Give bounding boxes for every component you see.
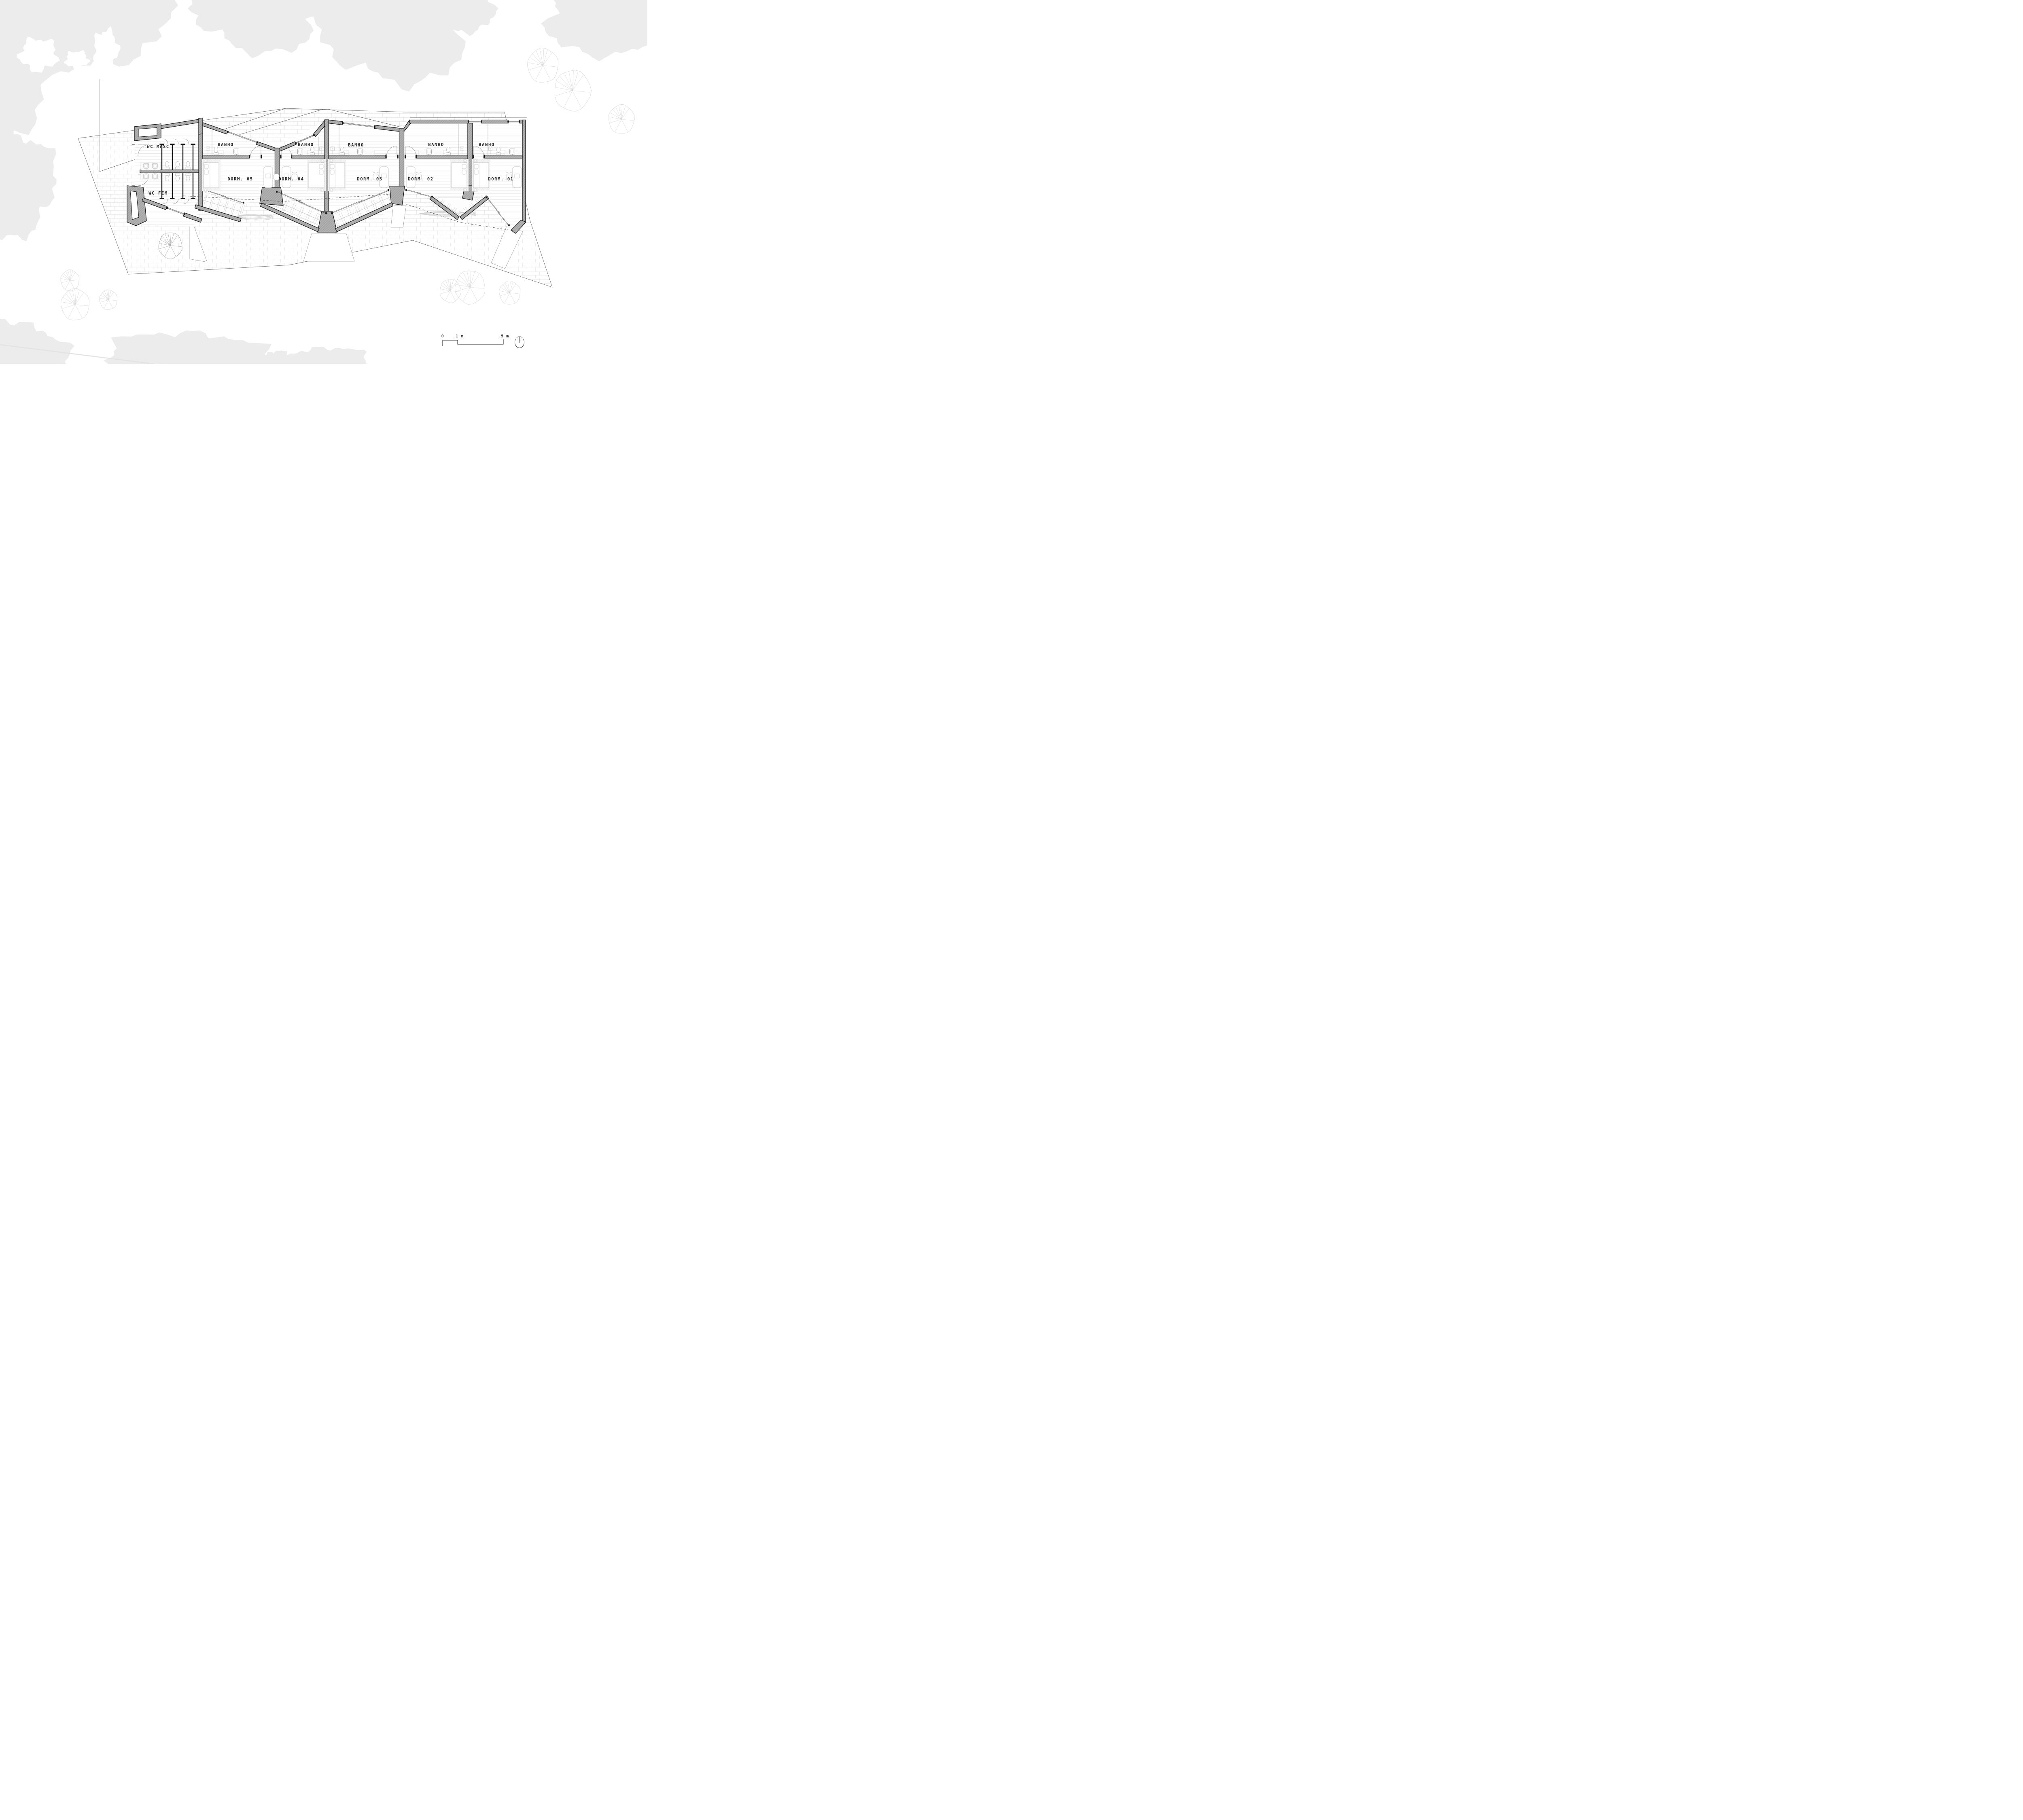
pillow bbox=[462, 164, 466, 169]
pillow bbox=[330, 170, 334, 174]
wall-divider-3-2 bbox=[399, 128, 404, 186]
toilet bbox=[214, 147, 218, 152]
tree-symbol bbox=[555, 70, 592, 111]
compass-needle-icon bbox=[520, 337, 520, 343]
label-dorm-02: DORM. 02 bbox=[408, 177, 433, 182]
bed bbox=[202, 159, 221, 191]
tree-symbol bbox=[609, 104, 634, 133]
north-indicator bbox=[515, 337, 524, 348]
label-dorm-05: DORM. 05 bbox=[227, 177, 253, 182]
tree-symbol bbox=[61, 270, 79, 290]
toilet bbox=[176, 176, 179, 181]
toilet bbox=[310, 147, 314, 152]
bed bbox=[307, 159, 326, 191]
wall-bath-u5 bbox=[203, 155, 250, 159]
label-banho-u3: BANHO bbox=[348, 143, 364, 148]
label-dorm-01: DORM. 01 bbox=[488, 177, 513, 182]
window-corner-nw bbox=[138, 128, 157, 137]
canopy-blob-bottom-left bbox=[0, 318, 74, 364]
tree-symbol bbox=[99, 290, 117, 310]
label-wc-masc: WC MASC bbox=[147, 144, 169, 149]
canopy-blob-top-center bbox=[184, 0, 327, 58]
toilet bbox=[165, 176, 169, 181]
tree-symbol bbox=[61, 288, 89, 320]
floor-plan-canvas: WC MASC WC FEM BANHO BANHO BANHO BANHO B… bbox=[0, 0, 647, 364]
sink bbox=[298, 149, 303, 154]
tree-symbol bbox=[527, 48, 558, 82]
pillow bbox=[319, 170, 323, 174]
tree-symbol bbox=[440, 279, 461, 303]
wall-bath-u3 bbox=[329, 155, 386, 159]
pillow bbox=[474, 170, 478, 174]
scale-five-meter: 5 m bbox=[501, 334, 509, 339]
sink bbox=[510, 149, 515, 154]
pillow bbox=[319, 164, 323, 169]
label-banho-u1: BANHO bbox=[479, 142, 495, 147]
wall-east bbox=[522, 120, 526, 222]
wall-post-wc-u5 bbox=[199, 118, 203, 135]
wall-bath-u2 bbox=[416, 155, 468, 159]
wall-north-east-b bbox=[481, 120, 508, 123]
scale-bar-line bbox=[443, 339, 503, 346]
toilet bbox=[496, 147, 500, 152]
wall-foot-3-2 bbox=[390, 186, 405, 205]
sink bbox=[358, 149, 363, 154]
bed bbox=[450, 159, 469, 191]
toilet bbox=[176, 161, 179, 167]
building bbox=[127, 117, 526, 233]
canopy-blob-bottom-center-left bbox=[104, 331, 271, 364]
label-banho-u2: BANHO bbox=[428, 142, 444, 147]
wall-foot-5-4 bbox=[260, 187, 283, 206]
wall-north-east-a bbox=[409, 120, 469, 123]
scale-zero: 0 bbox=[441, 334, 444, 339]
label-wc-fem: WC FEM bbox=[148, 191, 168, 196]
wall-bath-u1 bbox=[484, 155, 523, 159]
tree-symbol bbox=[499, 281, 520, 304]
window-glazing bbox=[507, 121, 520, 122]
canopy-blob-left-mid bbox=[0, 134, 57, 241]
scale-bar: 0 1 m 5 m bbox=[441, 334, 509, 346]
bed bbox=[328, 159, 346, 191]
toilet bbox=[165, 161, 169, 167]
scale-one-meter: 1 m bbox=[456, 334, 464, 339]
pillow bbox=[204, 164, 208, 169]
toilet bbox=[340, 147, 344, 152]
label-banho-u4: BANHO bbox=[298, 142, 314, 147]
pillow bbox=[462, 170, 466, 174]
sink bbox=[234, 149, 239, 154]
toilet bbox=[186, 176, 190, 181]
canopy-blob-top-far-right bbox=[541, 0, 647, 61]
window-glazing bbox=[468, 121, 482, 122]
wall-bath-u4 bbox=[292, 155, 325, 159]
label-dorm-03: DORM. 03 bbox=[357, 177, 382, 182]
pillow bbox=[204, 170, 208, 174]
label-banho-u5: BANHO bbox=[218, 142, 234, 147]
sink bbox=[426, 149, 432, 154]
site-plan-drawing: WC MASC WC FEM BANHO BANHO BANHO BANHO B… bbox=[0, 0, 647, 364]
toilet bbox=[186, 161, 190, 167]
pillow bbox=[330, 164, 334, 169]
tree-symbol bbox=[455, 271, 485, 305]
bed bbox=[472, 159, 490, 191]
label-dorm-04: DORM. 04 bbox=[278, 177, 304, 182]
wall-divider-5-4 bbox=[275, 148, 280, 188]
path-ramp-center bbox=[303, 234, 354, 261]
wall-wc-spine bbox=[140, 170, 199, 173]
pillow bbox=[474, 164, 478, 169]
toilet bbox=[446, 147, 450, 152]
